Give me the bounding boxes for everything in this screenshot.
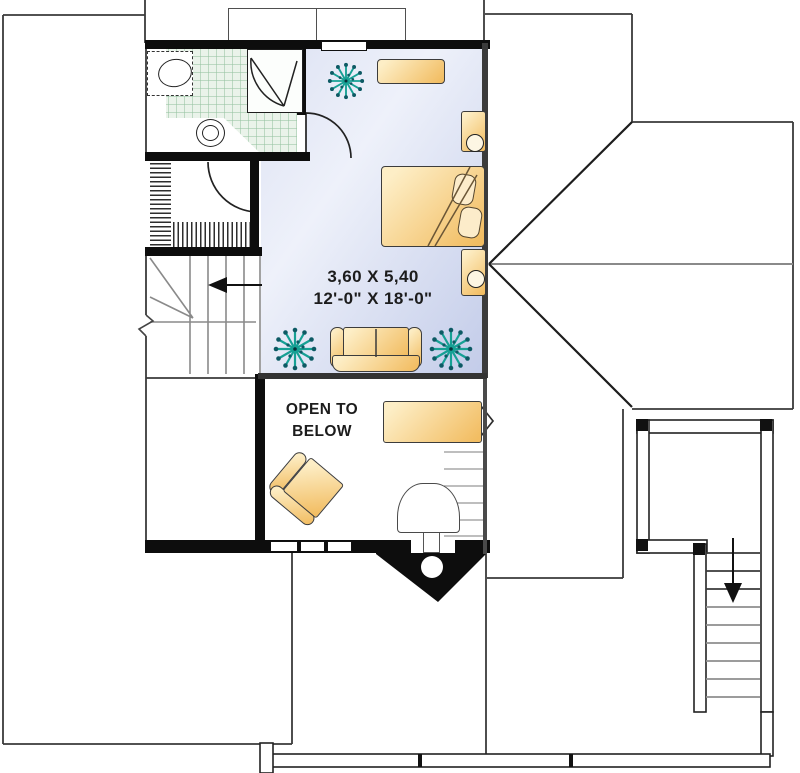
linework-over (0, 0, 800, 773)
open-to-below-line2: BELOW (272, 421, 372, 443)
plant-icon-left (274, 328, 317, 371)
room-dimensions: 3,60 X 5,40 12'-0" X 18'-0" (297, 266, 449, 310)
open-to-below-label: OPEN TO BELOW (272, 399, 372, 443)
floor-plan: 3,60 X 5,40 12'-0" X 18'-0" OPEN TO BELO… (0, 0, 800, 773)
dimensions-metric: 3,60 X 5,40 (297, 266, 449, 288)
bed-blanket-fold (428, 167, 477, 246)
plant-icon-right (430, 328, 473, 371)
dimensions-imperial: 12'-0" X 18'-0" (297, 288, 449, 310)
open-to-below-line1: OPEN TO (272, 399, 372, 421)
plant-icon-bedroom (328, 63, 364, 99)
shower-door (251, 58, 297, 106)
